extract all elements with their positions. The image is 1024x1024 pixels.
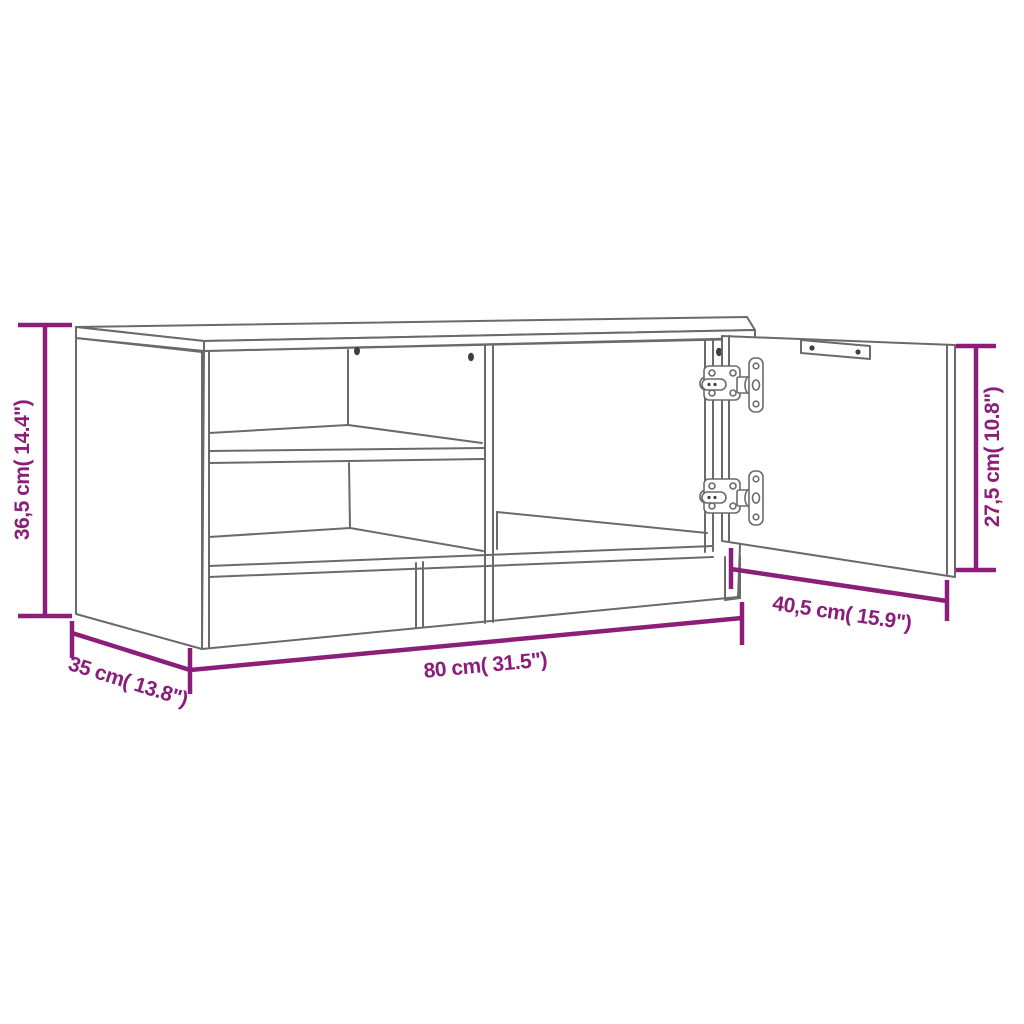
dimension-door-height: 27,5 cm( 10.8") xyxy=(956,346,1004,570)
dimension-label-width: 80 cm( 31.5") xyxy=(423,648,548,683)
cabinet-left-panel xyxy=(76,338,202,649)
furniture-dimension-diagram: 36,5 cm( 14.4") 80 cm( 31.5") 35 cm( 13.… xyxy=(0,0,1024,1024)
screw xyxy=(468,353,474,361)
screw xyxy=(354,347,360,355)
dimension-label-height: 36,5 cm( 14.4") xyxy=(11,400,34,540)
cabinet-outline xyxy=(76,317,755,649)
bracket-screw xyxy=(809,345,814,350)
bracket-screw xyxy=(855,349,860,354)
dimension-overall-height: 36,5 cm( 14.4") xyxy=(11,325,72,616)
diagram-page: 36,5 cm( 14.4") 80 cm( 31.5") 35 cm( 13.… xyxy=(0,0,1024,1024)
dimension-label-depth: 35 cm( 13.8") xyxy=(65,652,190,711)
dimension-label-door-height: 27,5 cm( 10.8") xyxy=(981,387,1004,527)
cabinet-front-face xyxy=(202,339,748,649)
dimension-label-door-width: 40,5 cm( 15.9") xyxy=(771,592,913,635)
